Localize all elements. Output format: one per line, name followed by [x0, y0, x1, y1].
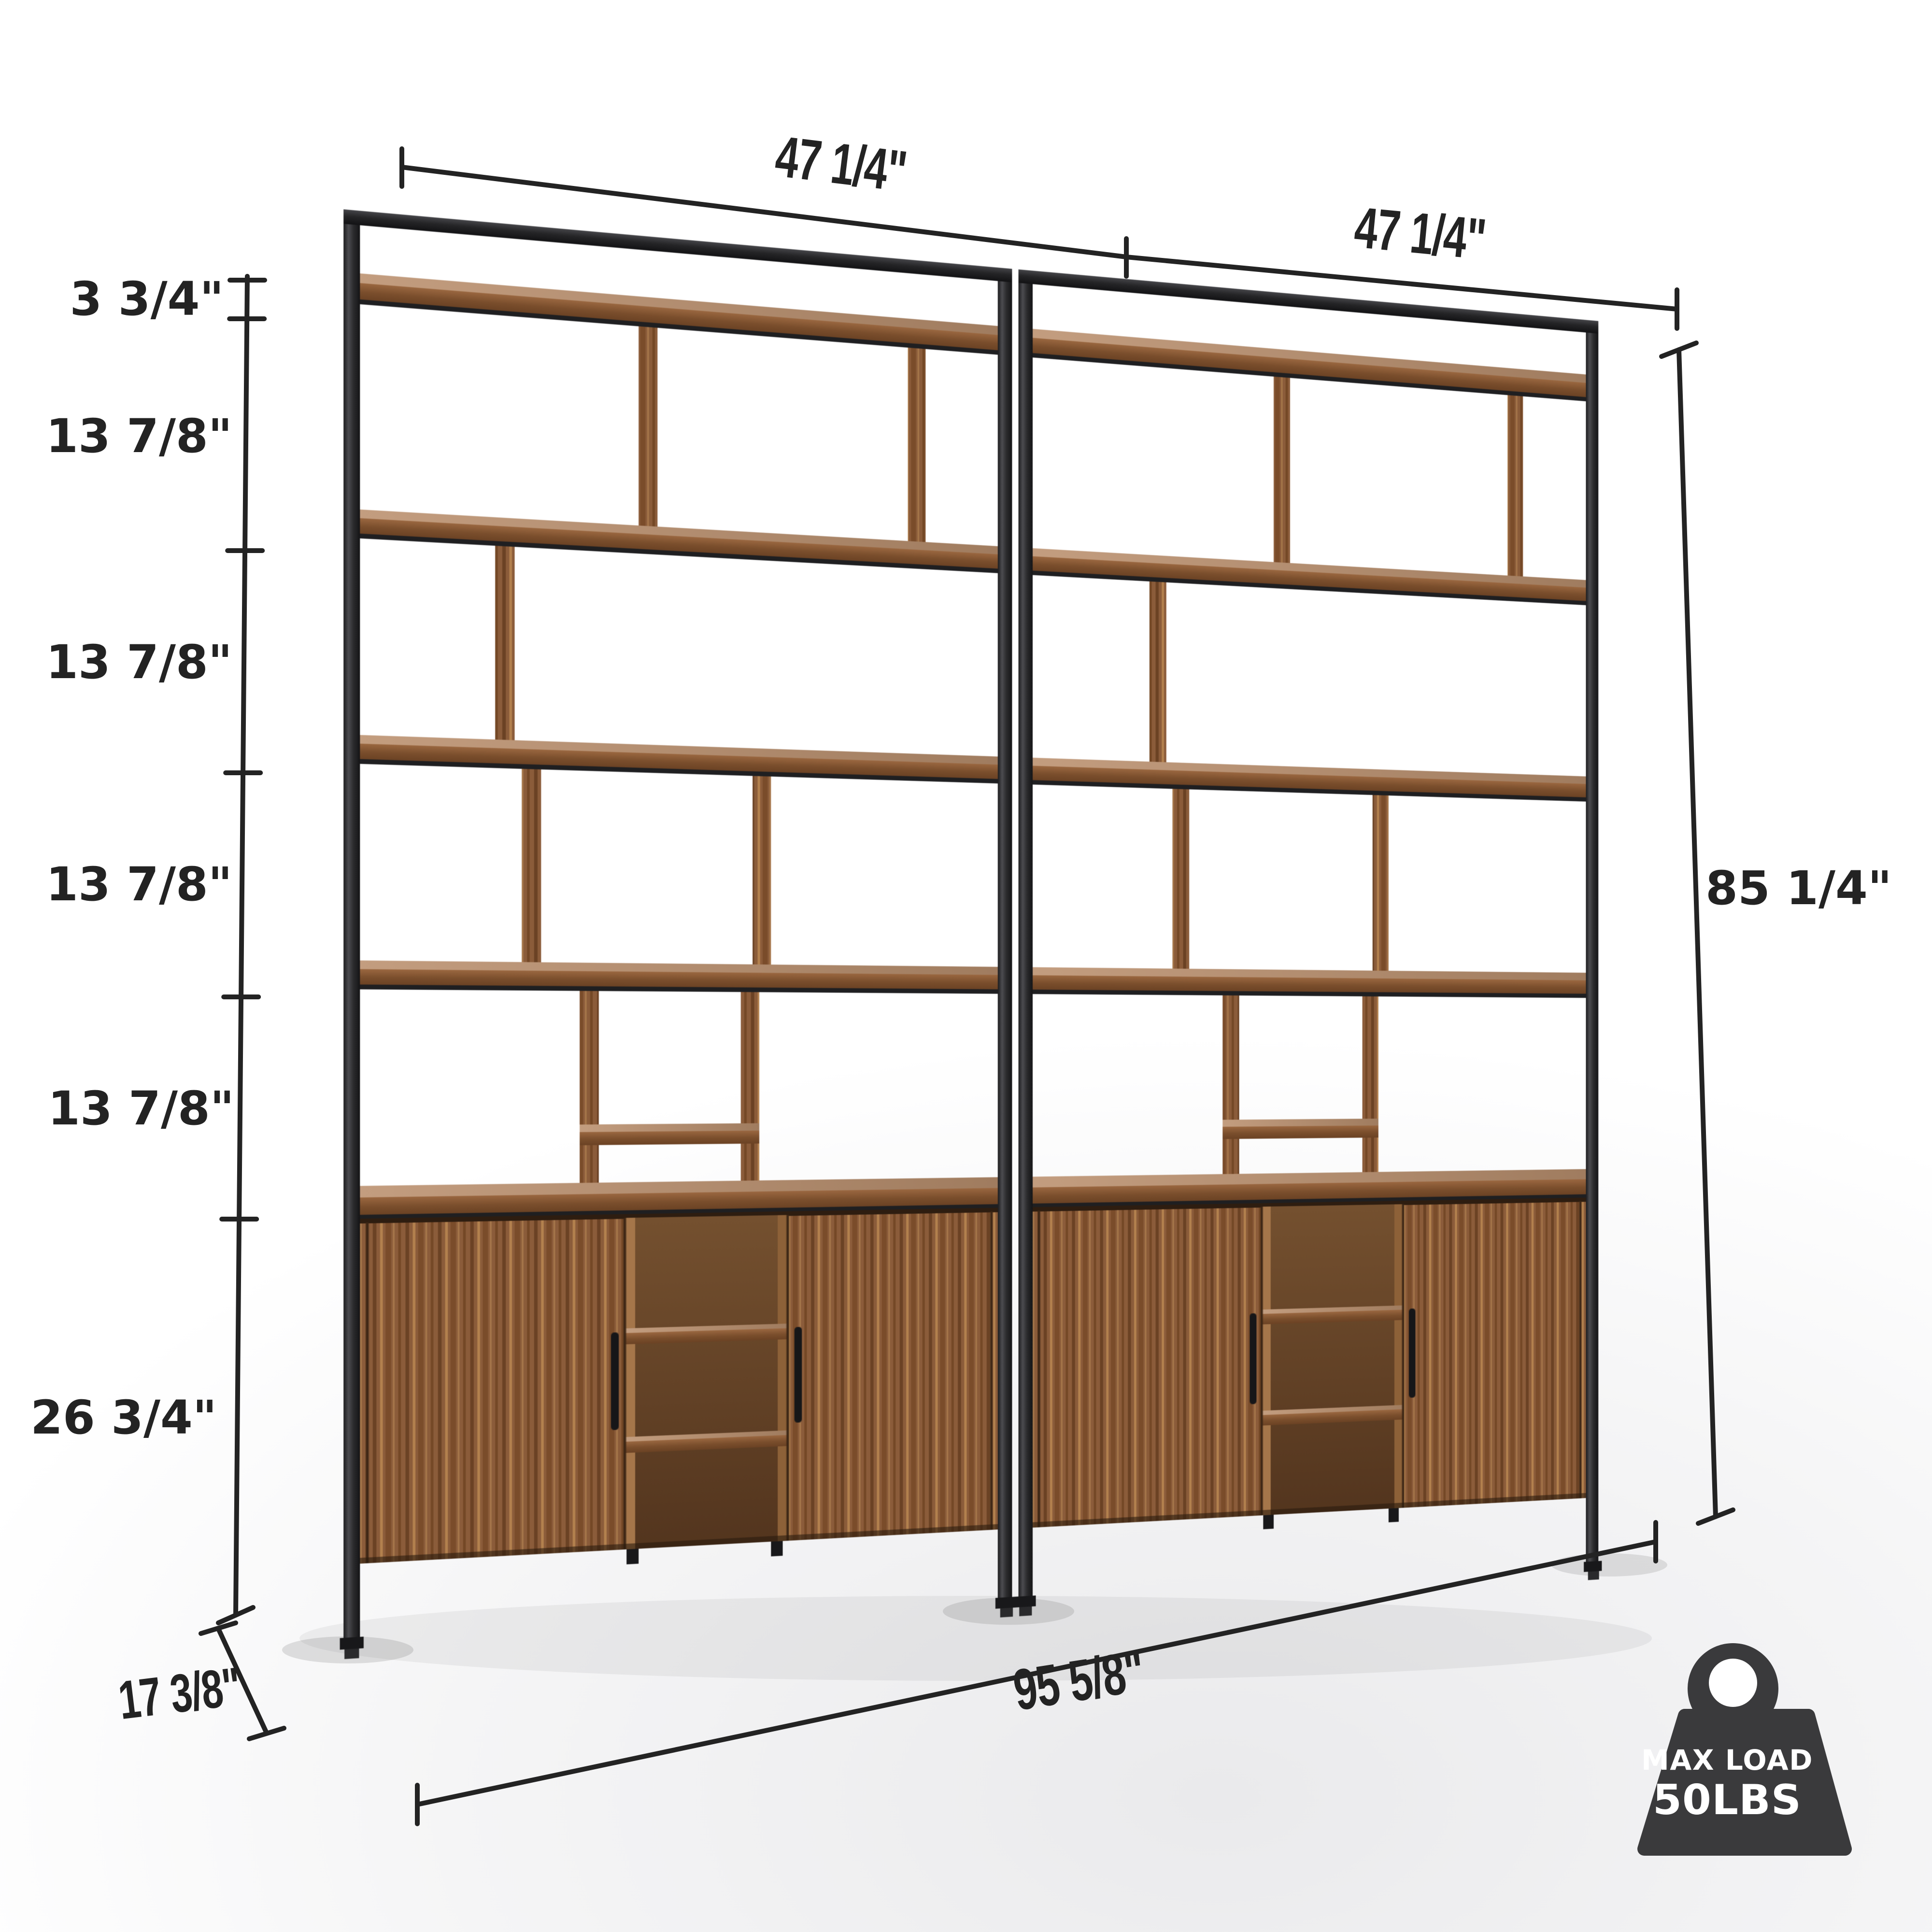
- dim-label-13-7-8-b: 13 7/8": [46, 635, 232, 689]
- dim-label-13-7-8-c: 13 7/8": [46, 857, 232, 911]
- dim-label-13-7-8-a: 13 7/8": [46, 409, 232, 463]
- dim-label-overall-width-group: 95 5/8": [1009, 1638, 1149, 1723]
- dimension-line-top-width-left: [402, 149, 1126, 276]
- dim-label-26-3-4: 26 3/4": [30, 1391, 217, 1445]
- max-load-badge: MAX LOAD 50LBS: [1641, 1643, 1845, 1849]
- dimension-line-overall-height: [1662, 343, 1733, 1523]
- dim-label-top-width-right: 47 1/4": [1352, 195, 1489, 272]
- dim-label-depth: 17 3/8": [115, 1656, 243, 1731]
- product-dimension-diagram: 3 3/4" 13 7/8" 13 7/8" 13 7/8" 13 7/8" 2…: [0, 0, 1932, 1932]
- badge-value: 50LBS: [1653, 1776, 1802, 1824]
- dim-label-top-right-group: 47 1/4": [1352, 195, 1489, 272]
- dim-label-3-3-4: 3 3/4": [70, 272, 224, 326]
- dimension-line-top-width-right: [1126, 257, 1677, 328]
- dimension-line-left-heights: [218, 276, 265, 1623]
- dimension-overlay: 3 3/4" 13 7/8" 13 7/8" 13 7/8" 13 7/8" 2…: [0, 0, 1932, 1932]
- dim-label-depth-group: 17 3/8": [115, 1656, 243, 1731]
- dim-label-top-width-left: 47 1/4": [772, 124, 909, 204]
- dim-label-overall-width: 95 5/8": [1009, 1638, 1149, 1723]
- dim-label-overall-height: 85 1/4": [1705, 861, 1892, 915]
- badge-title: MAX LOAD: [1641, 1744, 1813, 1776]
- dim-label-13-7-8-d: 13 7/8": [48, 1081, 234, 1136]
- dim-label-top-left-group: 47 1/4": [772, 124, 909, 204]
